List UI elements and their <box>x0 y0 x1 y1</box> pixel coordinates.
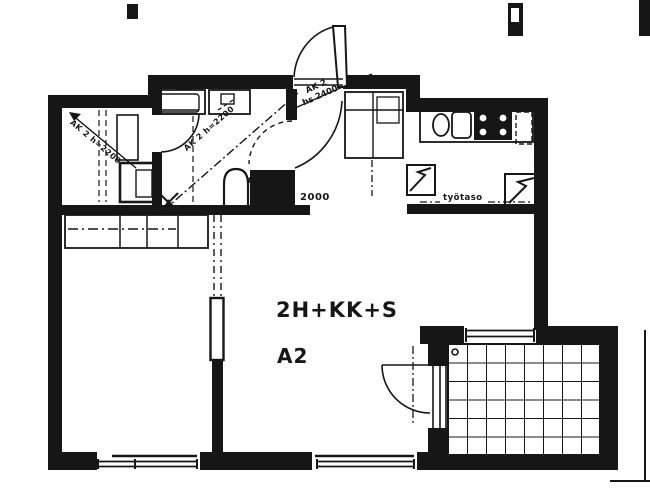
stove-symbol <box>474 110 512 140</box>
balcony-tiles <box>448 344 600 455</box>
top-wall-main-left <box>148 75 293 89</box>
bedroom-opening-dashes <box>214 215 221 296</box>
living-room-window <box>315 456 414 469</box>
balcony-right-wall <box>600 326 618 470</box>
floor-plan-sheet: 2H+KK+S A2 hs 2000 AK 2 hs 2400 AK 2 h=2… <box>0 0 650 502</box>
hs2000-tick <box>286 211 304 215</box>
appliance-square-left <box>407 165 435 195</box>
balcony-window <box>466 328 534 342</box>
left-wall <box>48 95 62 470</box>
bath-wall-chunk <box>250 170 295 210</box>
balcony-door-glazing <box>433 366 446 428</box>
fridge-symbol <box>516 112 532 144</box>
bedroom-closets <box>65 215 208 248</box>
balcony-door <box>382 346 430 426</box>
closet-dividers <box>120 215 178 248</box>
bottom-wall-left <box>48 452 97 470</box>
stub-top-middle-notch <box>511 8 519 22</box>
kitchen-worktop-label: työtaso <box>443 193 483 203</box>
bedroom-window <box>98 456 197 469</box>
sauna-bath-wall-bottom <box>152 152 162 205</box>
balcony-left-wall-upper <box>428 344 448 366</box>
hall-closet-dividers <box>345 92 403 158</box>
apartment-unit-label: A2 <box>277 344 308 368</box>
stub-top-right <box>639 0 650 36</box>
bath-cabinet-2-inner <box>221 94 234 104</box>
stub-top-left <box>127 4 138 19</box>
hall-partition-height-label: hs 2000 <box>282 192 330 203</box>
sauna-bench <box>117 115 138 160</box>
top-wall-sauna <box>48 95 160 108</box>
entrance-door <box>294 26 347 87</box>
balcony-top-wall-left <box>420 326 464 344</box>
kitchen-sink-basin <box>452 112 471 138</box>
bedroom-wall-solid <box>212 361 223 452</box>
sauna-stove <box>120 163 155 202</box>
bottom-wall-middle <box>200 452 312 470</box>
sauna-stove-inner <box>136 170 152 197</box>
kitchen-bottom-wall <box>407 204 541 214</box>
floor-plan-drawing <box>0 0 650 502</box>
closet-row <box>65 215 208 248</box>
apartment-type-label: 2H+KK+S <box>276 298 398 322</box>
pocket-door-leaf <box>211 298 224 360</box>
bathroom-door-arc <box>249 121 292 164</box>
entrance-inner-arc <box>295 101 342 168</box>
hall-closet <box>345 92 403 158</box>
kitchen-sink-bowl <box>433 114 449 136</box>
hall-fixtures <box>345 92 403 196</box>
kitchen-fixtures <box>407 105 538 207</box>
bath-hall-wall <box>286 89 297 120</box>
